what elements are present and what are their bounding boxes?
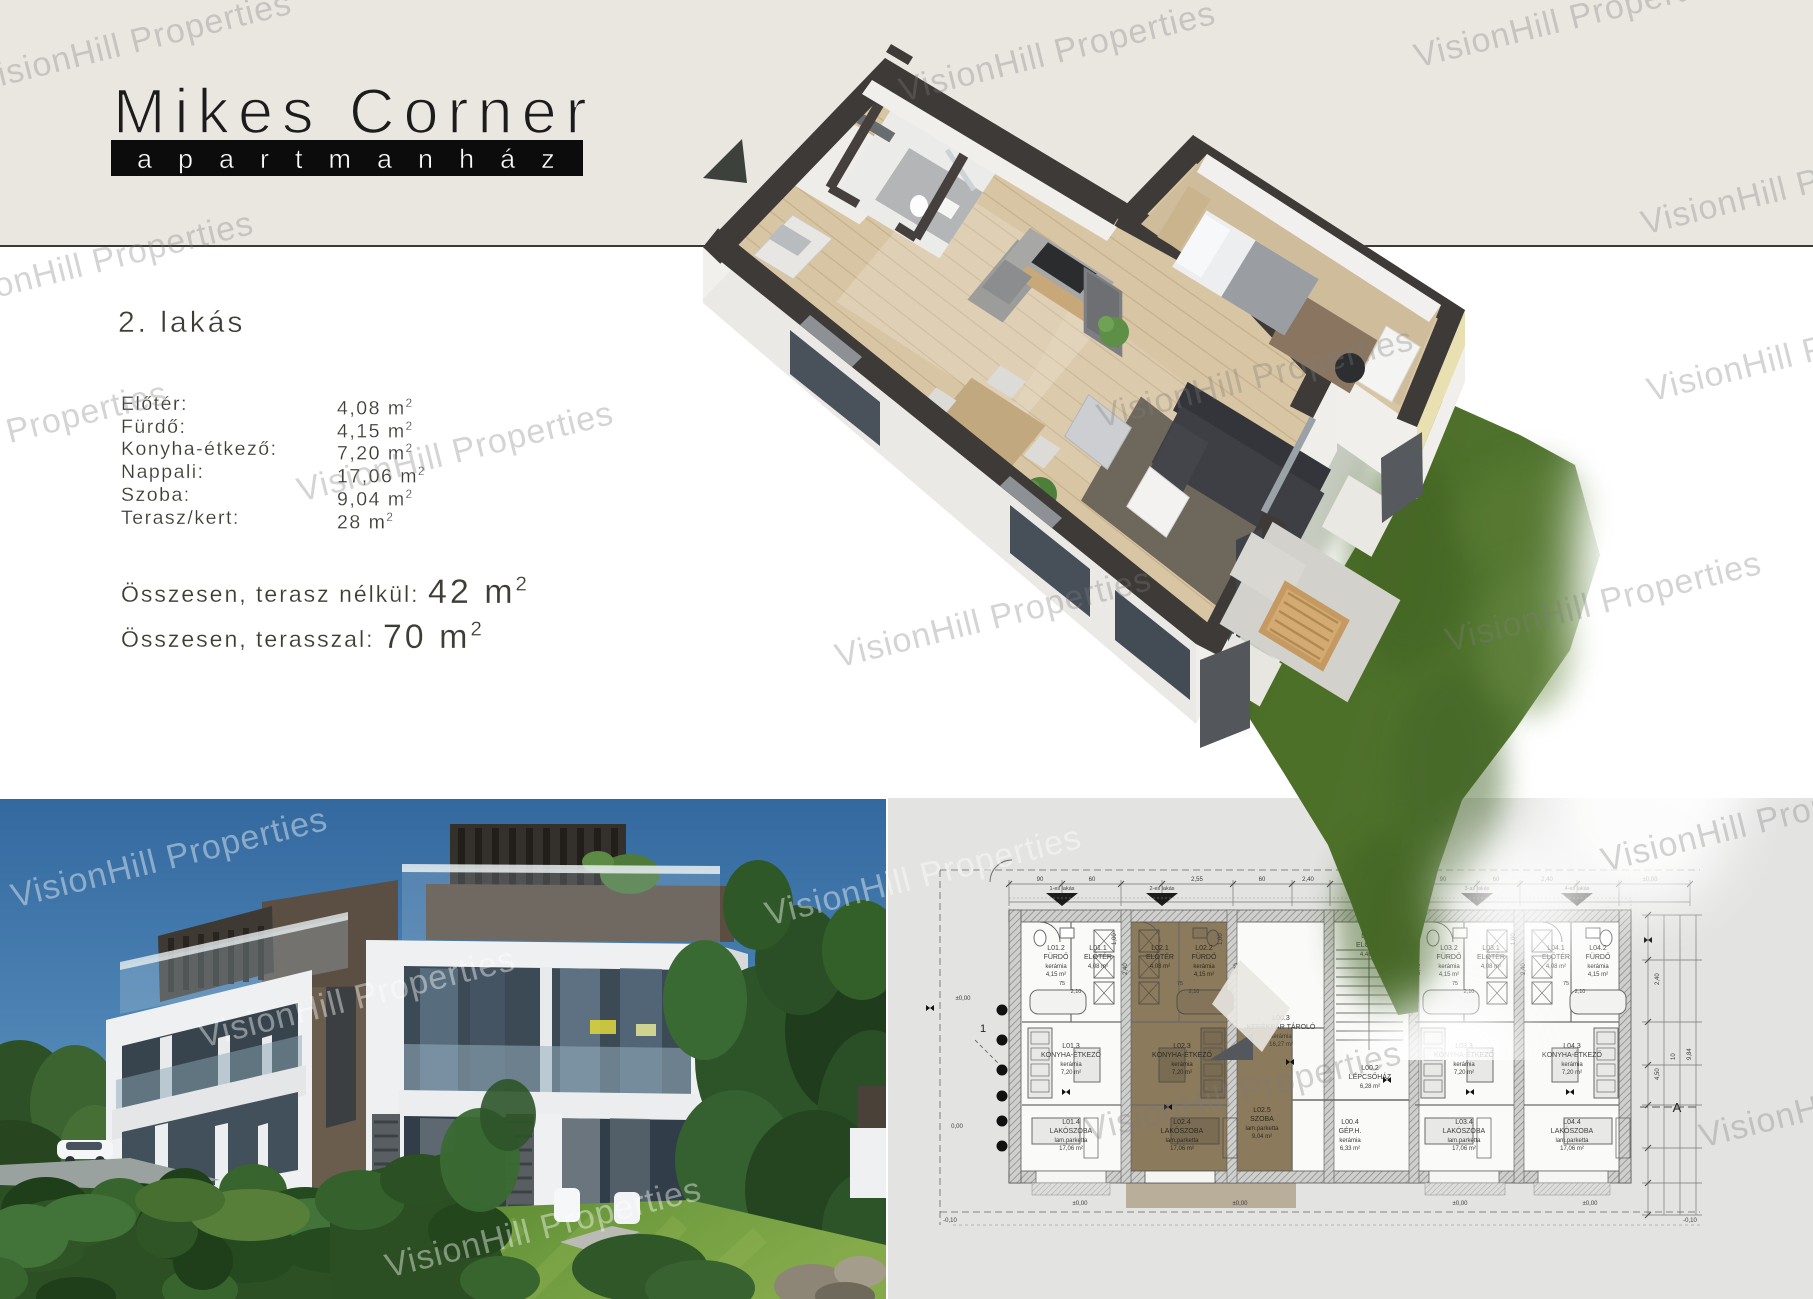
svg-text:7,20 m²: 7,20 m² — [1454, 1070, 1474, 1076]
svg-text:A: A — [1673, 1100, 1682, 1115]
svg-text:7,20 m²: 7,20 m² — [1562, 1070, 1582, 1076]
svg-text:kerámia: kerámia — [1060, 1062, 1082, 1068]
svg-text:±0,00: ±0,00 — [1583, 1201, 1599, 1207]
svg-text:7,20 m²: 7,20 m² — [1061, 1070, 1081, 1076]
svg-text:GÉP.H.: GÉP.H. — [1339, 1126, 1362, 1135]
svg-text:-0,10: -0,10 — [1683, 1218, 1697, 1224]
svg-text:17,06 m²: 17,06 m² — [1059, 1146, 1083, 1152]
svg-text:17,06 m²: 17,06 m² — [1452, 1146, 1476, 1152]
svg-text:kerámia: kerámia — [1171, 1062, 1193, 1068]
svg-text:±0,00: ±0,00 — [1453, 1201, 1469, 1207]
svg-text:0,00: 0,00 — [951, 1124, 963, 1130]
svg-text:L01.4: L01.4 — [1062, 1119, 1080, 1126]
svg-text:lam.parketta: lam.parketta — [1245, 1126, 1279, 1132]
svg-text:kerámia: kerámia — [1561, 1062, 1583, 1068]
svg-text:lam.parketta: lam.parketta — [1555, 1138, 1589, 1144]
svg-text:L00.4: L00.4 — [1341, 1119, 1359, 1126]
svg-text:kerámia: kerámia — [1339, 1138, 1361, 1144]
svg-text:9,04 m²: 9,04 m² — [1252, 1134, 1272, 1140]
svg-text:lam.parketta: lam.parketta — [1054, 1138, 1088, 1144]
svg-text:-0,10: -0,10 — [943, 1218, 957, 1224]
svg-text:lam.parketta: lam.parketta — [1165, 1138, 1199, 1144]
svg-text:7,20 m²: 7,20 m² — [1172, 1070, 1192, 1076]
svg-text:6,28 m²: 6,28 m² — [1360, 1084, 1380, 1090]
svg-text:17,06 m²: 17,06 m² — [1170, 1146, 1194, 1152]
svg-text:LAKÓSZOBA: LAKÓSZOBA — [1551, 1126, 1594, 1135]
svg-text:L03.4: L03.4 — [1455, 1119, 1473, 1126]
svg-text:4,50: 4,50 — [1655, 1068, 1661, 1080]
svg-text:±0,00: ±0,00 — [1073, 1201, 1089, 1207]
svg-text:lam.parketta: lam.parketta — [1447, 1138, 1481, 1144]
svg-text:6,33 m²: 6,33 m² — [1340, 1146, 1360, 1152]
svg-text:SZOBA: SZOBA — [1250, 1116, 1274, 1123]
svg-text:±0,00: ±0,00 — [1233, 1201, 1249, 1207]
svg-text:17,06 m²: 17,06 m² — [1560, 1146, 1584, 1152]
svg-text:LAKÓSZOBA: LAKÓSZOBA — [1443, 1126, 1486, 1135]
svg-text:L04.4: L04.4 — [1563, 1119, 1581, 1126]
svg-text:kerámia: kerámia — [1453, 1062, 1475, 1068]
